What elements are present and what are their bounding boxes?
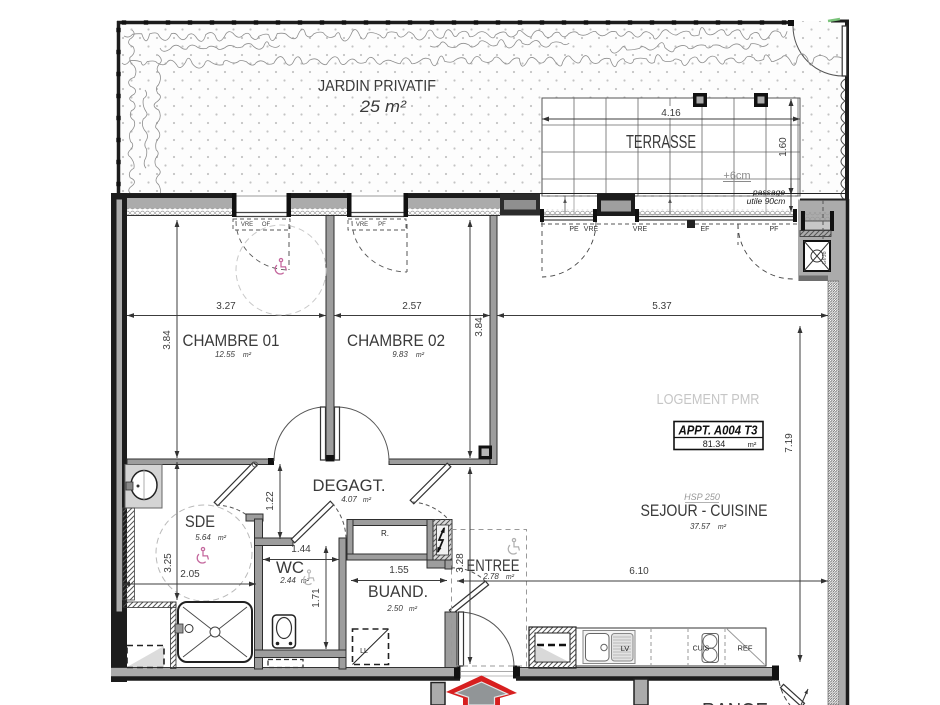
svg-text:m²: m² xyxy=(718,524,727,531)
svg-text:2.05: 2.05 xyxy=(180,569,200,580)
svg-text:5.37: 5.37 xyxy=(652,301,672,312)
svg-text:m²: m² xyxy=(363,497,372,504)
svg-text:3.25: 3.25 xyxy=(163,553,174,573)
svg-text:25 m²: 25 m² xyxy=(359,98,407,116)
svg-text:utile 90cm: utile 90cm xyxy=(747,196,786,206)
svg-text:1.44: 1.44 xyxy=(291,544,311,555)
svg-text:2.57: 2.57 xyxy=(402,301,422,312)
svg-text:5.64: 5.64 xyxy=(195,533,211,542)
svg-text:1.22: 1.22 xyxy=(265,491,276,511)
svg-text:DEGAGT.: DEGAGT. xyxy=(313,476,386,495)
svg-text:LL: LL xyxy=(360,648,368,655)
svg-text:6.10: 6.10 xyxy=(629,566,649,577)
svg-text:BUAND.: BUAND. xyxy=(368,582,428,601)
svg-text:m²: m² xyxy=(218,535,227,542)
svg-text:WC: WC xyxy=(276,558,304,577)
svg-text:LOGEMENT PMR: LOGEMENT PMR xyxy=(657,391,760,408)
svg-text:SEJOUR - CUISINE: SEJOUR - CUISINE xyxy=(641,501,768,520)
svg-text:VRE: VRE xyxy=(241,222,253,228)
svg-text:1.60: 1.60 xyxy=(778,137,789,157)
svg-text:3.27: 3.27 xyxy=(216,301,236,312)
svg-text:Gf/Jb: Gf/Jb xyxy=(822,251,828,264)
svg-text:2.50: 2.50 xyxy=(386,604,403,613)
svg-text:4.07: 4.07 xyxy=(341,495,357,504)
svg-text:PE: PE xyxy=(569,226,579,233)
svg-text:3.84: 3.84 xyxy=(162,330,173,350)
svg-text:PF: PF xyxy=(770,226,779,233)
svg-text:JARDIN PRIVATIF: JARDIN PRIVATIF xyxy=(318,78,436,95)
svg-text:m²: m² xyxy=(506,574,515,581)
svg-text:3.28: 3.28 xyxy=(455,553,466,573)
svg-text:VRE: VRE xyxy=(633,226,648,233)
svg-text:SDE: SDE xyxy=(185,512,215,531)
svg-text:3.84: 3.84 xyxy=(474,317,485,337)
svg-text:+6cm: +6cm xyxy=(723,170,750,182)
svg-text:EF: EF xyxy=(701,226,710,233)
svg-text:OF: OF xyxy=(262,222,271,228)
svg-text:m²: m² xyxy=(748,440,757,449)
svg-text:2.44: 2.44 xyxy=(279,576,296,585)
svg-text:VRE: VRE xyxy=(356,222,368,228)
svg-text:VRE: VRE xyxy=(584,226,599,233)
svg-text:PF: PF xyxy=(378,222,386,228)
svg-text:CUIS: CUIS xyxy=(693,646,710,653)
svg-text:1.55: 1.55 xyxy=(389,565,409,576)
svg-text:4.16: 4.16 xyxy=(661,108,681,119)
svg-text:R.: R. xyxy=(381,529,389,538)
svg-text:CHAMBRE 01: CHAMBRE 01 xyxy=(183,331,280,350)
svg-text:2.78: 2.78 xyxy=(482,572,499,581)
svg-text:RANGE: RANGE xyxy=(702,699,768,705)
svg-text:APPT. A004 T3: APPT. A004 T3 xyxy=(678,423,759,438)
svg-text:7.19: 7.19 xyxy=(784,433,795,453)
svg-text:1.71: 1.71 xyxy=(311,588,322,608)
svg-text:LV: LV xyxy=(621,644,630,653)
svg-text:CHAMBRE 02: CHAMBRE 02 xyxy=(347,331,445,350)
svg-text:m²: m² xyxy=(243,352,252,359)
svg-text:TERRASSE: TERRASSE xyxy=(626,131,696,152)
svg-text:m²: m² xyxy=(416,352,425,359)
svg-text:37.57: 37.57 xyxy=(690,522,711,531)
svg-text:m²: m² xyxy=(409,606,418,613)
svg-text:REF: REF xyxy=(738,644,753,653)
svg-text:81.34: 81.34 xyxy=(703,439,726,449)
svg-text:9.83: 9.83 xyxy=(392,350,408,359)
svg-text:12.55: 12.55 xyxy=(215,350,236,359)
